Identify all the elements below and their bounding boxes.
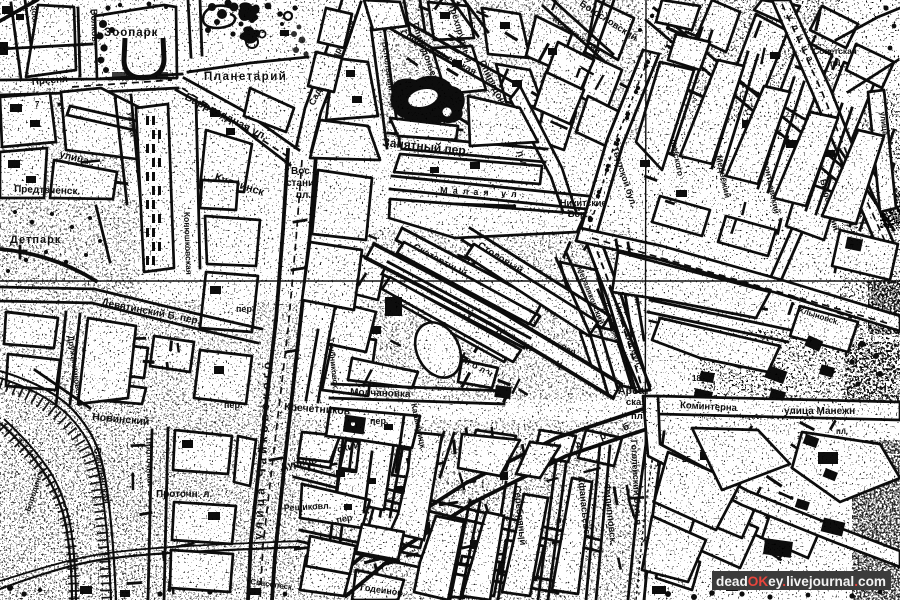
svg-text:deadOKey.livejournal.com: deadOKey.livejournal.com bbox=[716, 574, 886, 589]
